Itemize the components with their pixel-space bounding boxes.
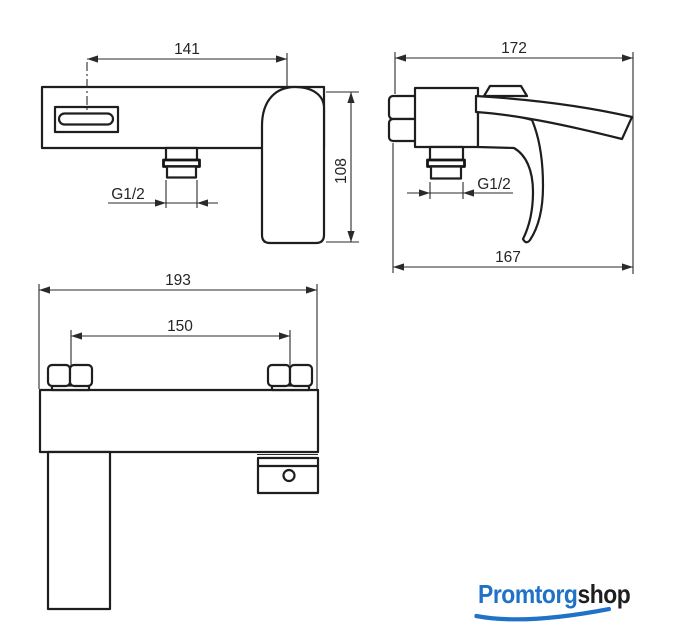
arrowhead <box>276 55 287 62</box>
bottom-left-nut-facet <box>48 365 70 386</box>
side-hex-nut-bottom <box>389 119 418 141</box>
front-width-dimension: 141 <box>87 41 287 87</box>
side-hex-nut-top <box>389 96 418 119</box>
bottom-left-nut-facet <box>70 365 92 386</box>
side-top-width-label: 172 <box>501 40 527 57</box>
arrowhead <box>347 231 354 242</box>
arrowhead <box>622 54 633 61</box>
front-height-dimension: 108 <box>326 92 359 242</box>
logo-text-secondary: shop <box>577 579 630 609</box>
promtorgshop-logo: Promtorgshop <box>478 581 654 607</box>
bottom-width-label: 193 <box>165 272 191 289</box>
side-bottom-width-label: 167 <box>495 249 521 266</box>
logo-text-primary: Promtorg <box>478 579 577 609</box>
bottom-mount-spacing-dimension: 150 <box>71 318 290 365</box>
side-view: 172 167 G1/2 <box>389 40 633 274</box>
arrowhead <box>71 332 82 339</box>
arrowhead <box>622 263 633 270</box>
front-thread-stub-upper <box>166 148 197 160</box>
side-top-cap <box>484 86 527 96</box>
technical-drawing: 141 108 G1/2 <box>0 0 681 640</box>
side-thread-stub-upper <box>430 147 463 160</box>
front-thread-label: G1/2 <box>111 186 145 203</box>
arrowhead <box>197 199 208 206</box>
front-view: 141 108 G1/2 <box>42 41 359 243</box>
arrowhead <box>463 189 474 196</box>
front-spout-slot <box>59 114 113 125</box>
front-handle <box>262 87 324 243</box>
bottom-screw-hole <box>284 470 295 481</box>
side-thread-stub-lower <box>431 167 461 179</box>
bottom-view: 193 150 <box>39 272 318 609</box>
front-thread-stub-lower <box>167 167 196 178</box>
bottom-body <box>40 390 318 452</box>
bottom-right-nut-facet <box>268 365 290 386</box>
side-thread-label: G1/2 <box>477 176 511 193</box>
arrowhead <box>419 189 430 196</box>
arrowhead <box>39 286 50 293</box>
logo-swoosh <box>473 607 614 623</box>
front-width-label: 141 <box>174 41 200 58</box>
arrowhead <box>155 199 166 206</box>
logo-text: Promtorgshop <box>478 581 654 607</box>
arrowhead <box>87 55 98 62</box>
bottom-spout-leg <box>48 452 110 609</box>
front-thread-dimension: G1/2 <box>108 180 218 208</box>
side-body <box>415 88 478 147</box>
arrowhead <box>279 332 290 339</box>
arrowhead <box>395 54 406 61</box>
arrowhead <box>347 92 354 103</box>
front-height-label: 108 <box>333 158 350 184</box>
bottom-mount-spacing-label: 150 <box>167 318 193 335</box>
arrowhead <box>306 286 317 293</box>
arrowhead <box>393 263 404 270</box>
bottom-right-nut-facet <box>290 365 312 386</box>
drawing-canvas: 141 108 G1/2 <box>0 0 681 640</box>
